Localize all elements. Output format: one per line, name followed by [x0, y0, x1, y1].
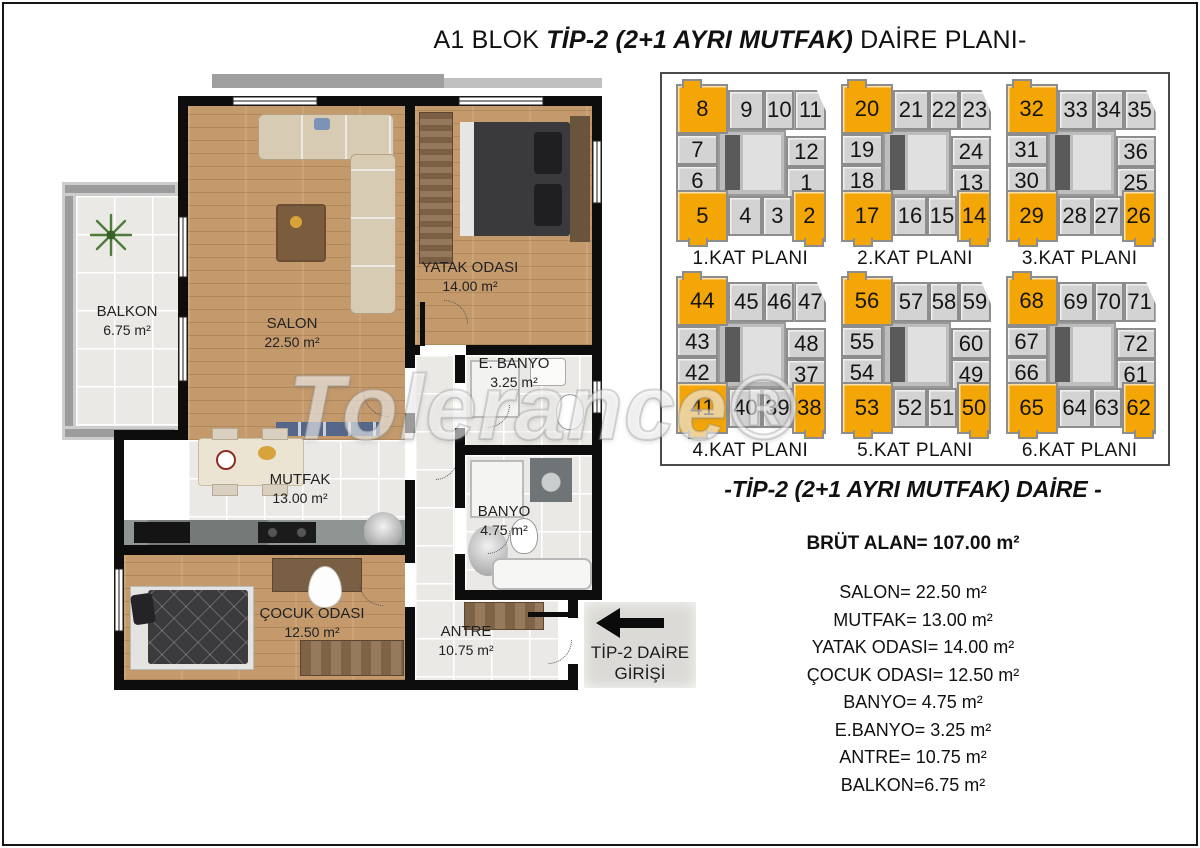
unit-cell: 3	[762, 196, 792, 236]
unit-cell: 2	[792, 190, 826, 242]
table-decor	[290, 216, 302, 228]
parapet-strip	[212, 74, 444, 88]
unit-cell: 40	[728, 388, 762, 428]
label-banyo: BANYO 4.75 m²	[454, 502, 554, 540]
title-prefix: A1 BLOK	[434, 26, 547, 54]
unit-cell: 16	[893, 196, 927, 236]
stair-core	[718, 130, 786, 196]
key-plans-box: 8910117612154321.KAT PLANI20212223191824…	[660, 72, 1170, 466]
unit-cell: 29	[1006, 190, 1058, 242]
bed-pillow	[534, 132, 562, 174]
unit-cell: 50	[957, 382, 991, 434]
floor-plan-mini: 8910117612154321.KAT PLANI	[668, 84, 833, 270]
wall-entry	[568, 664, 578, 690]
yatak-top-window	[458, 96, 544, 106]
unit-cell: 53	[841, 382, 893, 434]
floor-plan-mini: 6869707167667261656463626.KAT PLANI	[997, 276, 1162, 462]
bed-pillow	[534, 184, 562, 226]
entrance-callout: TİP-2 DAİRE GİRİŞİ	[584, 602, 696, 688]
elevator-shaft	[890, 135, 905, 190]
label-cocuk: ÇOCUK ODASI 12.50 m²	[252, 604, 372, 642]
unit-cell: 69	[1058, 282, 1094, 322]
stair-core	[1048, 322, 1116, 388]
room-area: 22.50 m²	[212, 333, 372, 352]
unit-cell: 20	[841, 84, 893, 134]
label-antre: ANTRE 10.75 m²	[416, 622, 516, 660]
chair	[262, 428, 288, 440]
unit-cell: 43	[676, 326, 718, 357]
tv-console	[276, 422, 380, 436]
yatak-window	[592, 140, 602, 204]
door-leaf-entry	[528, 612, 570, 617]
unit-cell: 46	[764, 282, 794, 322]
unit-cell: 32	[1006, 84, 1058, 134]
cocuk-window	[114, 568, 124, 632]
area-line: E.BANYO= 3.25 m²	[688, 717, 1138, 745]
area-line: ANTRE= 10.75 m²	[688, 744, 1138, 772]
parapet-strip	[444, 78, 602, 88]
door-leaf-yatak	[420, 302, 425, 346]
unit-cell: 56	[841, 276, 893, 326]
unit-cell: 23	[959, 90, 991, 130]
floor-label: 1.KAT PLANI	[693, 248, 809, 270]
bed-pillow	[130, 593, 156, 626]
room-name: YATAK ODASI	[410, 258, 530, 277]
unit-cell: 48	[786, 328, 826, 359]
unit-cell: 39	[762, 388, 792, 428]
unit-cell: 58	[929, 282, 959, 322]
unit-cell: 7	[676, 134, 718, 165]
summary-heading: -TİP-2 (2+1 AYRI MUTFAK) DAİRE -	[688, 476, 1138, 503]
toilet	[556, 394, 584, 430]
unit-cell: 70	[1094, 282, 1124, 322]
area-line: BALKON=6.75 m²	[688, 772, 1138, 800]
unit-cell: 33	[1058, 90, 1094, 130]
label-yatak: YATAK ODASI 14.00 m²	[410, 258, 530, 296]
room-name: BANYO	[454, 502, 554, 521]
label-balkon: BALKON 6.75 m²	[76, 302, 178, 340]
balcony-band-top	[62, 182, 178, 196]
unit-cell: 60	[951, 328, 991, 359]
area-line: SALON= 22.50 m²	[688, 579, 1138, 607]
label-ebanyo: E. BANYO 3.25 m²	[456, 354, 572, 392]
stair-core	[1048, 130, 1116, 196]
summary-panel: -TİP-2 (2+1 AYRI MUTFAK) DAİRE - BRÜT AL…	[688, 476, 1138, 799]
unit-cell: 65	[1006, 382, 1058, 434]
unit-cell: 51	[927, 388, 957, 428]
unit-cell: 19	[841, 134, 883, 165]
plate	[258, 446, 276, 460]
wall-corridor	[405, 607, 415, 680]
sofa-pillow	[314, 118, 330, 130]
unit-cell: 15	[927, 196, 957, 236]
sofa	[350, 154, 396, 314]
core-landing	[743, 327, 781, 382]
unit-cell: 68	[1006, 276, 1058, 326]
room-name: E. BANYO	[456, 354, 572, 373]
area-line: ÇOCUK ODASI= 12.50 m²	[688, 662, 1138, 690]
floor-label: 6.KAT PLANI	[1022, 440, 1138, 462]
room-name: BALKON	[76, 302, 178, 321]
label-salon: SALON 22.50 m²	[212, 314, 372, 352]
room-name: SALON	[212, 314, 372, 333]
area-line: YATAK ODASI= 14.00 m²	[688, 634, 1138, 662]
chair	[212, 484, 238, 496]
area-line: MUTFAK= 13.00 m²	[688, 607, 1138, 635]
balcony-door-window	[178, 316, 188, 382]
entrance-label: TİP-2 DAİRE GİRİŞİ	[584, 642, 696, 684]
floor-label: 2.KAT PLANI	[857, 248, 973, 270]
room-area: 14.00 m²	[410, 277, 530, 296]
room-area: 13.00 m²	[240, 489, 360, 508]
room-area: 4.75 m²	[454, 521, 554, 540]
elevator-shaft	[890, 327, 905, 382]
room-area: 12.50 m²	[252, 623, 372, 642]
unit-cell: 72	[1116, 328, 1156, 359]
unit-cell: 5	[676, 190, 728, 242]
unit-cell: 47	[794, 282, 826, 322]
headboard	[570, 116, 590, 242]
wardrobe	[300, 640, 404, 676]
cooktop	[258, 522, 316, 543]
area-list: SALON= 22.50 m²MUTFAK= 13.00 m²YATAK ODA…	[688, 579, 1138, 799]
room-name: ÇOCUK ODASI	[252, 604, 372, 623]
core-landing	[908, 327, 946, 382]
entrance-arrow-icon	[618, 618, 664, 628]
wall-banyo-antre	[455, 590, 602, 600]
room-area: 6.75 m²	[76, 321, 178, 340]
title-suffix: DAİRE PLANI-	[853, 26, 1026, 54]
elevator-shaft	[725, 135, 740, 190]
wall-ebanyo-banyo	[455, 445, 602, 455]
floor-plan-mini: 5657585955546049535251505.KAT PLANI	[833, 276, 998, 462]
wall-corridor	[405, 413, 415, 433]
floor-plan-mini: 2021222319182413171615142.KAT PLANI	[833, 84, 998, 270]
unit-cell: 34	[1094, 90, 1124, 130]
core-landing	[908, 135, 946, 190]
unit-cell: 35	[1124, 90, 1156, 130]
unit-cell: 26	[1122, 190, 1156, 242]
elevator-shaft	[725, 327, 740, 382]
wall-balcony-stub	[114, 430, 188, 440]
floor-label: 3.KAT PLANI	[1022, 248, 1138, 270]
key-plans-grid: 8910117612154321.KAT PLANI20212223191824…	[668, 84, 1162, 454]
core-landing	[1073, 135, 1111, 190]
unit-cell: 17	[841, 190, 893, 242]
unit-cell: 11	[794, 90, 826, 130]
unit-cell: 57	[893, 282, 929, 322]
unit-cell: 55	[841, 326, 883, 357]
kitchen-sink	[134, 522, 190, 543]
wall-yatak-bottom	[405, 345, 420, 355]
unit-cell: 63	[1092, 388, 1122, 428]
floor-plan-mini: 4445464743424837414039384.KAT PLANI	[668, 276, 833, 462]
bed-single-duvet	[148, 590, 248, 664]
stair-core	[883, 130, 951, 196]
entrance-label-line1: TİP-2 DAİRE	[584, 642, 696, 663]
balcony-door-window	[178, 216, 188, 278]
area-line: BANYO= 4.75 m²	[688, 689, 1138, 717]
title-emphasis: TİP-2 (2+1 AYRI MUTFAK)	[546, 26, 853, 54]
wall-kitchen-cocuk	[114, 545, 405, 555]
unit-cell: 4	[728, 196, 762, 236]
unit-cell: 22	[929, 90, 959, 130]
unit-cell: 27	[1092, 196, 1122, 236]
wall-bottom	[114, 680, 578, 690]
stair-core	[718, 322, 786, 388]
stair-core	[883, 322, 951, 388]
core-landing	[1073, 327, 1111, 382]
unit-cell: 45	[728, 282, 764, 322]
unit-cell: 14	[957, 190, 991, 242]
floor-label: 5.KAT PLANI	[857, 440, 973, 462]
wall-salon-yatak	[405, 106, 415, 345]
page: A1 BLOK TİP-2 (2+1 AYRI MUTFAK) DAİRE PL…	[0, 0, 1200, 848]
page-title: A1 BLOK TİP-2 (2+1 AYRI MUTFAK) DAİRE PL…	[375, 26, 1085, 55]
floor-label: 4.KAT PLANI	[693, 440, 809, 462]
entrance-arrow-icon	[596, 608, 620, 638]
unit-cell: 59	[959, 282, 991, 322]
unit-cell: 38	[792, 382, 826, 434]
room-area: 3.25 m²	[456, 373, 572, 392]
washing-machine	[530, 458, 572, 502]
unit-cell: 41	[676, 382, 728, 434]
unit-cell: 24	[951, 136, 991, 167]
unit-cell: 9	[728, 90, 764, 130]
label-mutfak: MUTFAK 13.00 m²	[240, 470, 360, 508]
bathtub	[492, 558, 592, 590]
elevator-shaft	[1055, 135, 1070, 190]
wardrobe	[419, 112, 453, 264]
unit-cell: 31	[1006, 134, 1048, 165]
elevator-shaft	[1055, 327, 1070, 382]
gross-area: BRÜT ALAN= 107.00 m²	[688, 533, 1138, 555]
unit-cell: 64	[1058, 388, 1092, 428]
room-name: MUTFAK	[240, 470, 360, 489]
floor-plan: BALKON 6.75 m² SALON 22.50 m² YATAK ODAS…	[62, 88, 698, 712]
room-area: 10.75 m²	[416, 641, 516, 660]
unit-cell: 62	[1122, 382, 1156, 434]
unit-cell: 21	[893, 90, 929, 130]
room-name: ANTRE	[416, 622, 516, 641]
unit-cell: 12	[786, 136, 826, 167]
wall-left-lower	[114, 430, 124, 690]
balcony-band-left	[62, 182, 76, 440]
unit-cell: 28	[1058, 196, 1092, 236]
wall-corridor	[405, 480, 415, 563]
core-landing	[743, 135, 781, 190]
coffee-table	[276, 204, 326, 262]
ebanyo-window	[592, 380, 602, 414]
unit-cell: 71	[1124, 282, 1156, 322]
water-heater	[364, 512, 402, 548]
salon-window	[232, 96, 318, 106]
unit-cell: 52	[893, 388, 927, 428]
entrance-label-line2: GİRİŞİ	[584, 663, 696, 684]
floor-plan-mini: 3233343531303625292827263.KAT PLANI	[997, 84, 1162, 270]
unit-cell: 44	[676, 276, 728, 326]
bed-sheet	[460, 122, 474, 236]
unit-cell: 10	[764, 90, 794, 130]
plant-icon	[88, 212, 134, 258]
unit-cell: 36	[1116, 136, 1156, 167]
unit-cell: 8	[676, 84, 728, 134]
wall-bath	[455, 428, 465, 508]
plate	[216, 450, 236, 470]
unit-cell: 67	[1006, 326, 1048, 357]
chair	[212, 428, 238, 440]
